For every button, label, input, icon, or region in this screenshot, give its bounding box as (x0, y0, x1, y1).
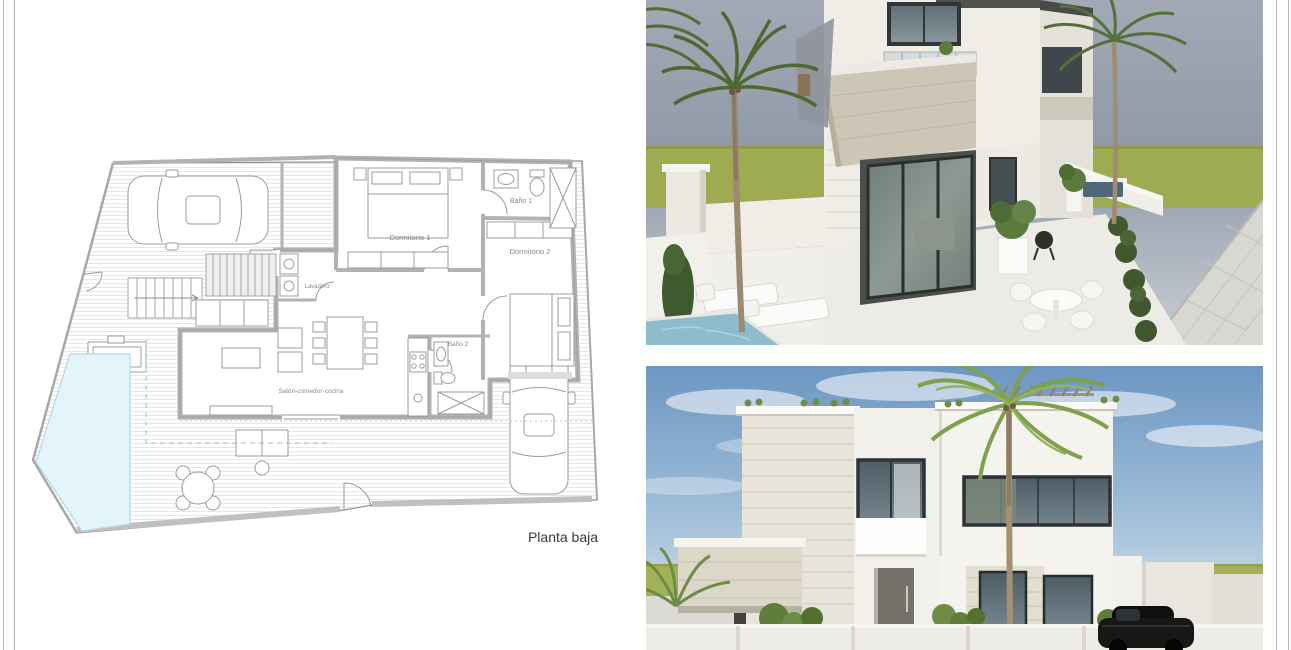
upper-window (889, 4, 959, 44)
villa-front-elevation (674, 386, 1142, 650)
render-top-svg (646, 0, 1263, 345)
architectural-sheet: Dormitorio 1 Baño 1 Dormitorio 2 Lavader… (0, 0, 1291, 650)
lower-right-windows (966, 566, 1092, 628)
car-top-view-carport (128, 170, 268, 250)
frame-line-right-outer (1288, 0, 1289, 650)
floor-plan: Dormitorio 1 Baño 1 Dormitorio 2 Lavader… (0, 0, 650, 650)
render-bottom-svg (646, 366, 1263, 650)
render-photo-bottom (646, 366, 1263, 650)
label-dormitorio1: Dormitorio 1 (390, 233, 431, 242)
pool (36, 354, 130, 531)
porch-glass-doors (860, 150, 976, 305)
stone-balcony-box (822, 54, 976, 167)
label-dormitorio2: Dormitorio 2 (510, 247, 551, 256)
entry-door (874, 568, 914, 628)
kitchen-counter (408, 338, 428, 416)
plan-caption: Planta baja (528, 529, 598, 545)
label-lavadero: Lavadero (304, 284, 330, 290)
label-bano2: Baño 2 (448, 341, 469, 348)
label-salon: Salón-comedor-cocina (278, 388, 343, 395)
frame-line-right-inner (1276, 0, 1277, 650)
label-bano1: Baño 1 (510, 198, 532, 205)
render-photo-top (646, 0, 1263, 345)
floor-plan-svg: Dormitorio 1 Baño 1 Dormitorio 2 Lavader… (0, 0, 650, 650)
